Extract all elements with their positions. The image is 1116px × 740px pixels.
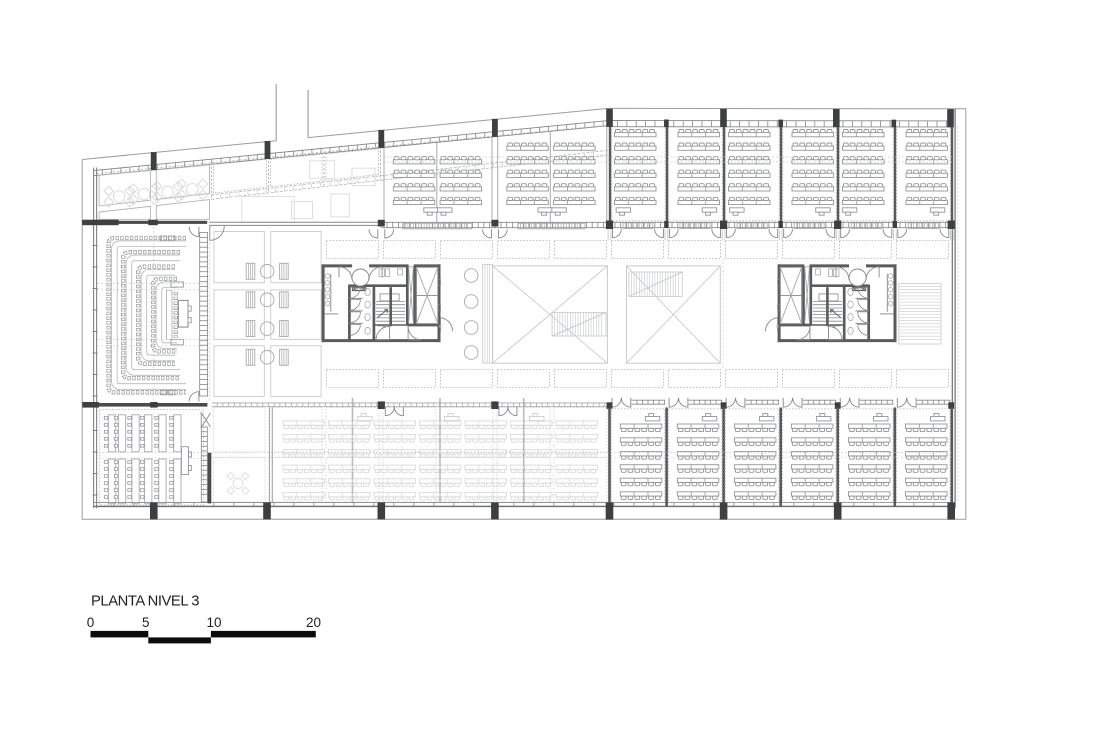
- svg-text:5: 5: [142, 615, 150, 630]
- svg-text:0: 0: [87, 615, 95, 630]
- svg-text:10: 10: [206, 615, 221, 630]
- svg-text:20: 20: [306, 615, 321, 630]
- svg-text:PLANTA NIVEL 3: PLANTA NIVEL 3: [91, 594, 199, 610]
